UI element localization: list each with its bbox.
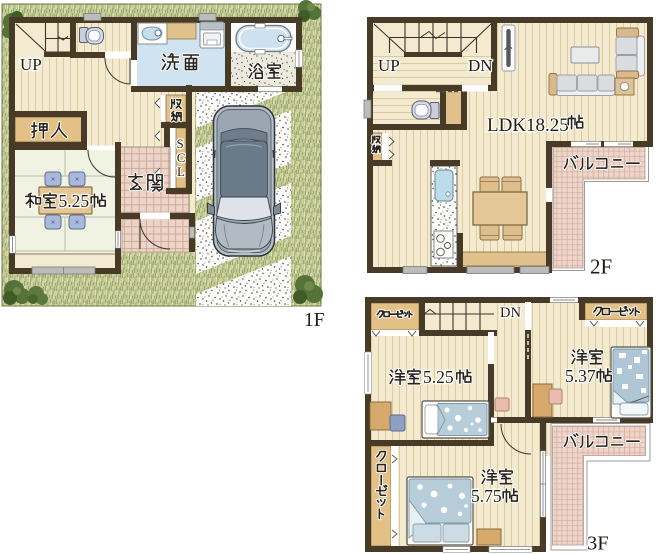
svg-text:UP: UP — [378, 56, 400, 75]
svg-text:5.75: 5.75 — [471, 486, 502, 506]
svg-text:2F: 2F — [590, 255, 612, 279]
svg-text:L: L — [177, 164, 185, 179]
svg-text:5.25: 5.25 — [59, 191, 90, 211]
svg-text:DN: DN — [500, 305, 521, 321]
svg-text:C: C — [177, 150, 186, 165]
svg-text:5.25: 5.25 — [423, 367, 454, 387]
svg-text:S: S — [177, 136, 184, 151]
svg-text:LDK18.25: LDK18.25 — [487, 115, 569, 136]
svg-text:UP: UP — [20, 55, 42, 74]
svg-text:5.37: 5.37 — [565, 366, 596, 386]
svg-text:DN: DN — [468, 56, 493, 75]
svg-text:3F: 3F — [587, 533, 609, 554]
svg-text:1F: 1F — [304, 310, 325, 331]
